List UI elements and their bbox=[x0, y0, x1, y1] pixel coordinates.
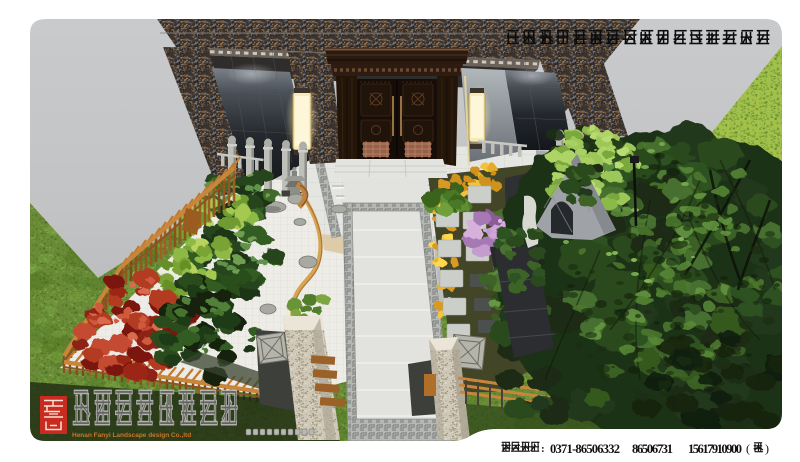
svg-text:15617910900: 15617910900 bbox=[688, 442, 742, 456]
svg-text:): ) bbox=[765, 442, 769, 456]
svg-text:(: ( bbox=[746, 442, 750, 456]
svg-text:86506731: 86506731 bbox=[632, 442, 673, 456]
svg-text:Henan Fanyi Landscape design C: Henan Fanyi Landscape design Co.,ltd bbox=[72, 432, 191, 439]
svg-text::: : bbox=[541, 443, 545, 455]
svg-text:0371-86506332: 0371-86506332 bbox=[550, 442, 620, 456]
